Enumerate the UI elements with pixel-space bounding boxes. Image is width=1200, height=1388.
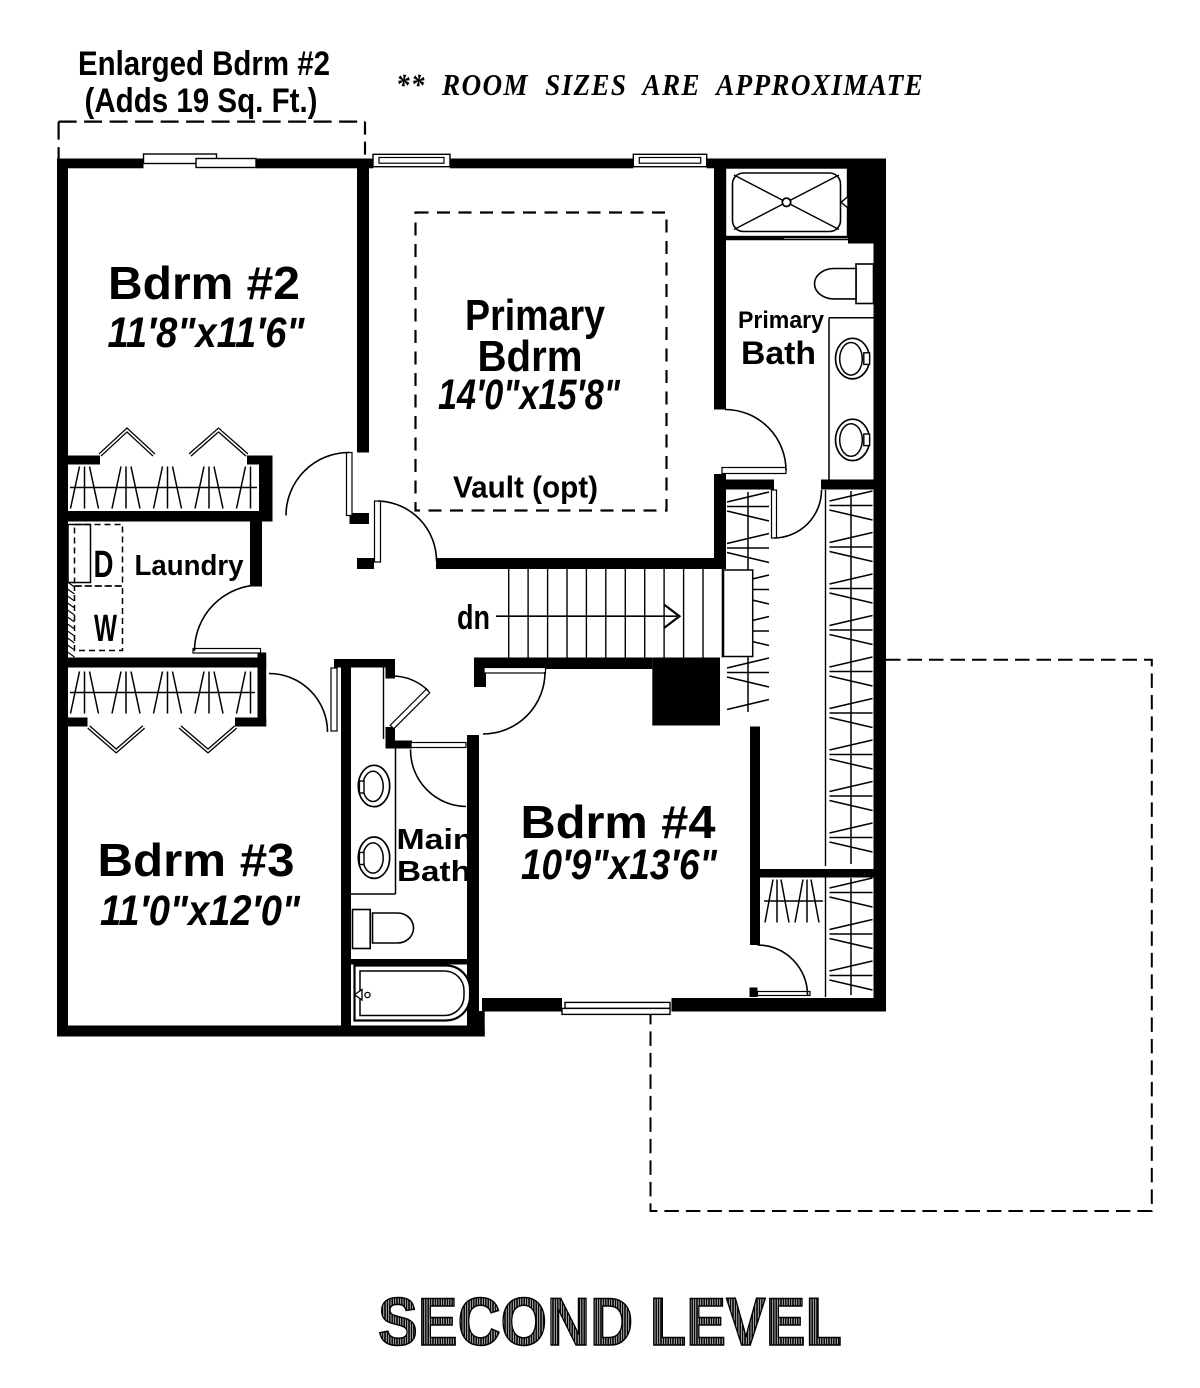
svg-text:(Adds 19 Sq. Ft.): (Adds 19 Sq. Ft.) — [85, 82, 318, 120]
svg-text:** ROOM SIZES ARE APPROXIM: ** ROOM SIZES ARE APPROXIMATE — [396, 67, 924, 102]
svg-text:dn: dn — [457, 599, 490, 637]
svg-text:SECOND LEVEL: SECOND LEVEL — [378, 1284, 842, 1360]
svg-text:Enlarged Bdrm #2: Enlarged Bdrm #2 — [78, 45, 330, 83]
svg-text:Bath: Bath — [397, 856, 471, 888]
svg-text:Vault (opt): Vault (opt) — [453, 470, 598, 505]
svg-text:10′9"x13′6": 10′9"x13′6" — [521, 841, 718, 889]
svg-text:Bdrm #2: Bdrm #2 — [108, 257, 300, 309]
svg-text:Bdrm #3: Bdrm #3 — [98, 834, 295, 886]
svg-text:Primary: Primary — [738, 307, 825, 334]
svg-text:Bath: Bath — [741, 335, 816, 371]
svg-text:11′0"x12′0": 11′0"x12′0" — [100, 887, 301, 935]
svg-text:Laundry: Laundry — [135, 550, 244, 582]
svg-text:11′8"x11′6": 11′8"x11′6" — [108, 309, 306, 357]
svg-text:Main: Main — [397, 824, 474, 856]
svg-text:14′0"x15′8": 14′0"x15′8" — [438, 371, 620, 419]
svg-text:W: W — [94, 608, 117, 650]
svg-text:D: D — [94, 544, 114, 586]
